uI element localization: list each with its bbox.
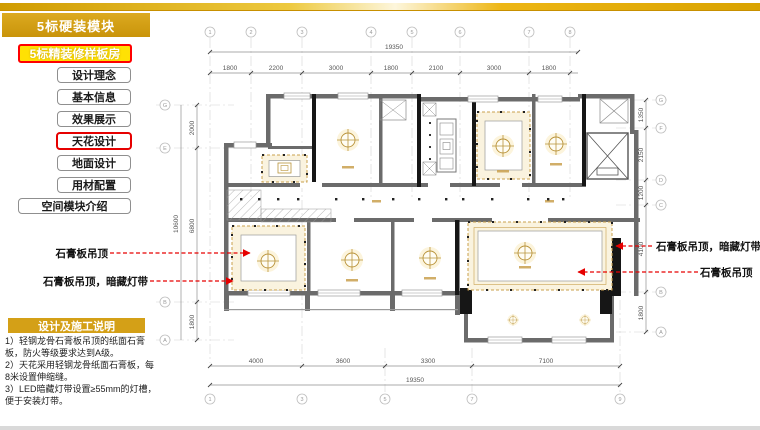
- module-title-label: 5标硬装模块: [37, 16, 115, 35]
- svg-text:2000: 2000: [189, 120, 196, 135]
- svg-text:1800: 1800: [384, 65, 399, 72]
- note-item: 2）天花采用轻钢龙骨纸面石膏板，每8米设置伸缩缝。: [5, 360, 157, 383]
- svg-text:7100: 7100: [539, 358, 554, 365]
- annotation-gypsum-ceiling-left: 石膏板吊顶: [28, 246, 108, 261]
- svg-text:19350: 19350: [406, 377, 424, 384]
- top-accent-bar: [0, 3, 760, 11]
- svg-text:5: 5: [410, 30, 413, 36]
- note-item: 3）LED暗藏灯带设置≥55mm的灯槽，便于安装灯带。: [5, 384, 157, 407]
- downlight-dots: [240, 198, 564, 200]
- menu-item-basic-info[interactable]: 基本信息: [57, 89, 131, 105]
- svg-text:D: D: [659, 178, 663, 184]
- svg-text:4000: 4000: [249, 358, 264, 365]
- notes-title: 设计及施工说明: [8, 318, 145, 333]
- svg-text:1800: 1800: [542, 65, 557, 72]
- svg-text:1200: 1200: [638, 185, 645, 200]
- svg-text:A: A: [163, 338, 167, 344]
- module-title: 5标硬装模块: [2, 13, 150, 37]
- entry-closet: [380, 100, 406, 120]
- svg-text:8: 8: [568, 30, 571, 36]
- annotation-gypsum-ceiling-lightband-right: 石膏板吊顶，暗藏灯带: [656, 239, 760, 254]
- submodule-label: 5标精装修样板房: [30, 45, 121, 62]
- ceiling-tray-living: [468, 222, 612, 290]
- notes-body: 1）轻钢龙骨石膏板吊顶的纸面石膏板，防火等级要求达到A级。 2）天花采用轻钢龙骨…: [5, 336, 157, 408]
- svg-text:6: 6: [458, 30, 461, 36]
- ceiling-tray-bedroom-top: [477, 112, 530, 179]
- svg-text:3000: 3000: [487, 65, 502, 72]
- svg-text:1800: 1800: [223, 65, 238, 72]
- svg-text:1350: 1350: [638, 107, 645, 122]
- svg-text:3000: 3000: [329, 65, 344, 72]
- dim-label: 19350: [385, 44, 403, 51]
- svg-text:1800: 1800: [189, 314, 196, 329]
- svg-text:G: G: [659, 98, 663, 104]
- svg-text:E: E: [163, 146, 167, 152]
- svg-text:6800: 6800: [189, 218, 196, 233]
- ceiling-tray-master: [232, 226, 305, 290]
- svg-text:1: 1: [208, 30, 211, 36]
- annotation-gypsum-ceiling-lightband-left: 石膏板吊顶，暗藏灯带: [14, 274, 148, 289]
- menu-item-effect-display[interactable]: 效果展示: [57, 111, 131, 127]
- svg-text:1: 1: [208, 397, 211, 403]
- bottom-edge-strip: [0, 426, 760, 430]
- svg-text:3: 3: [300, 397, 303, 403]
- ceiling-tray-small: [262, 155, 307, 182]
- svg-text:3: 3: [300, 30, 303, 36]
- svg-text:4100: 4100: [638, 241, 645, 256]
- ceiling-light-icon: [492, 135, 514, 157]
- svg-text:9: 9: [618, 397, 621, 403]
- svg-text:7: 7: [470, 397, 473, 403]
- ceiling-light-icon: [257, 250, 279, 272]
- svg-text:2100: 2100: [429, 65, 444, 72]
- submodule-button[interactable]: 5标精装修样板房: [18, 44, 132, 63]
- menu-item-space-module-intro[interactable]: 空间模块介绍: [18, 198, 131, 214]
- kitchen-fittings: [423, 103, 456, 175]
- elevator-shaft: [587, 99, 628, 179]
- svg-text:C: C: [659, 203, 663, 209]
- svg-text:G: G: [163, 103, 167, 109]
- menu-item-floor-design[interactable]: 地面设计: [57, 155, 131, 171]
- svg-text:7: 7: [527, 30, 530, 36]
- svg-text:2150: 2150: [638, 147, 645, 162]
- svg-text:3300: 3300: [421, 358, 436, 365]
- svg-text:2200: 2200: [269, 65, 284, 72]
- svg-text:4: 4: [369, 30, 372, 36]
- svg-text:B: B: [659, 290, 663, 296]
- svg-text:3600: 3600: [336, 358, 351, 365]
- svg-text:1800: 1800: [638, 305, 645, 320]
- svg-text:A: A: [659, 330, 663, 336]
- annotation-gypsum-ceiling-right: 石膏板吊顶: [700, 265, 753, 280]
- hatch-area: [227, 190, 331, 222]
- note-item: 1）轻钢龙骨石膏板吊顶的纸面石膏板，防火等级要求达到A级。: [5, 336, 157, 359]
- menu-item-design-concept[interactable]: 设计理念: [57, 67, 131, 83]
- svg-text:5: 5: [383, 397, 386, 403]
- menu-item-ceiling-design[interactable]: 天花设计: [56, 132, 132, 150]
- ceiling-light-icon: [514, 242, 536, 264]
- svg-text:2: 2: [249, 30, 252, 36]
- menu-item-material-config[interactable]: 用材配置: [57, 177, 131, 193]
- svg-text:10600: 10600: [173, 215, 180, 233]
- svg-text:B: B: [163, 300, 167, 306]
